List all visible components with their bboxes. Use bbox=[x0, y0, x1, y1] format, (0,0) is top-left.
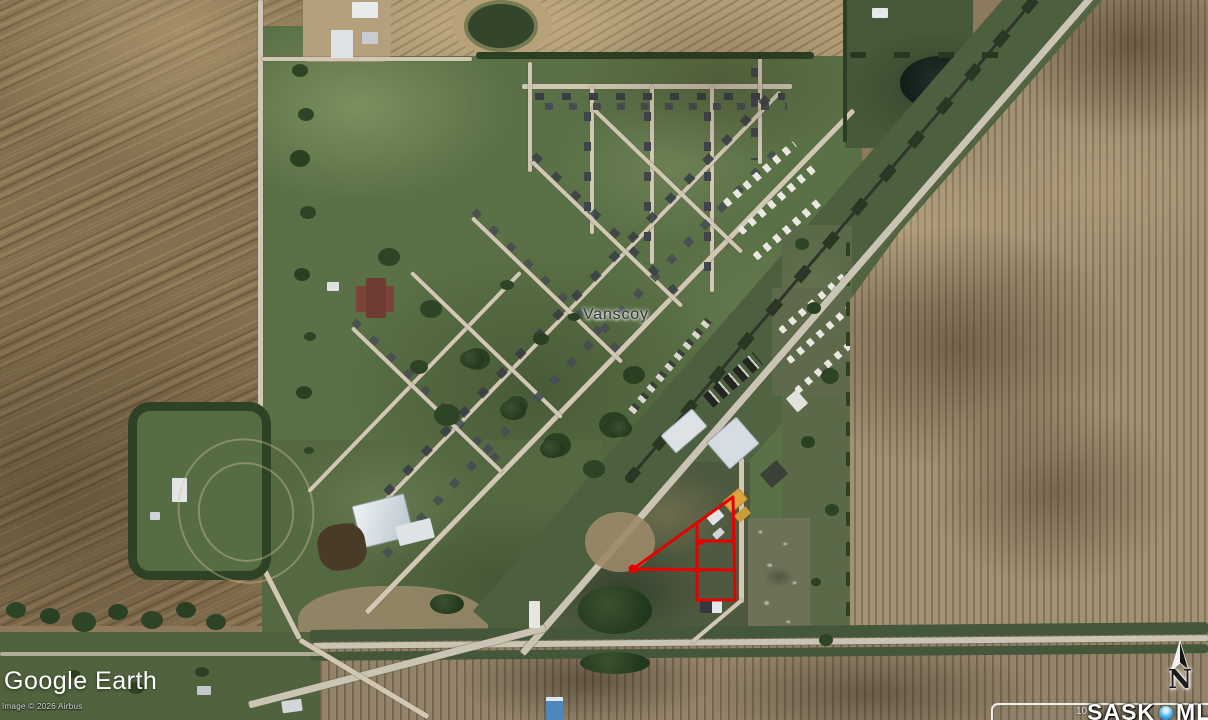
salvage-yard bbox=[748, 518, 810, 636]
tree bbox=[540, 440, 564, 458]
tree-cluster bbox=[378, 248, 400, 266]
tree-cluster bbox=[795, 238, 809, 250]
south-building bbox=[700, 601, 722, 613]
shed bbox=[150, 512, 160, 520]
farm-shed bbox=[352, 2, 378, 18]
school-wing bbox=[366, 278, 386, 318]
tree-band bbox=[580, 652, 650, 674]
tree-cluster bbox=[292, 64, 308, 77]
tree bbox=[610, 420, 632, 437]
access-road-east bbox=[739, 458, 744, 603]
bare-ground bbox=[585, 512, 655, 572]
white-shed bbox=[872, 8, 888, 18]
grid-road-south-west bbox=[0, 652, 322, 656]
mls-watermark: 10 SASK MLS ® bbox=[1076, 699, 1208, 720]
map-canvas[interactable]: Vanscoy Google Earth Image © 2026 Airbus… bbox=[0, 0, 1208, 720]
place-label: Vanscoy bbox=[583, 306, 649, 324]
mls-word-mls: MLS bbox=[1176, 699, 1208, 720]
google-earth-logo: Google Earth bbox=[4, 667, 157, 696]
tree-cluster bbox=[6, 602, 26, 618]
cloud-shadow bbox=[575, 0, 865, 160]
north-label: N bbox=[1164, 665, 1196, 695]
tree bbox=[430, 594, 464, 614]
farm-shed bbox=[362, 32, 378, 44]
slough bbox=[468, 4, 534, 48]
tree-line bbox=[850, 52, 1000, 58]
imagery-credit: Image © 2026 Airbus bbox=[2, 702, 83, 711]
mls-word-sask: SASK bbox=[1087, 699, 1155, 720]
shed bbox=[197, 686, 211, 695]
white-tower bbox=[529, 601, 540, 628]
white-building bbox=[327, 282, 339, 291]
street-v1 bbox=[528, 62, 532, 172]
farm-shed bbox=[331, 30, 353, 58]
street-north-edge bbox=[262, 57, 472, 61]
tree-mass bbox=[578, 586, 652, 634]
field-edge-trees bbox=[846, 242, 850, 632]
mls-pin-icon bbox=[1159, 706, 1173, 720]
blue-roof-building bbox=[546, 697, 563, 720]
tree bbox=[500, 400, 526, 420]
tree bbox=[460, 350, 484, 368]
mls-prefix: 10 bbox=[1076, 706, 1087, 717]
